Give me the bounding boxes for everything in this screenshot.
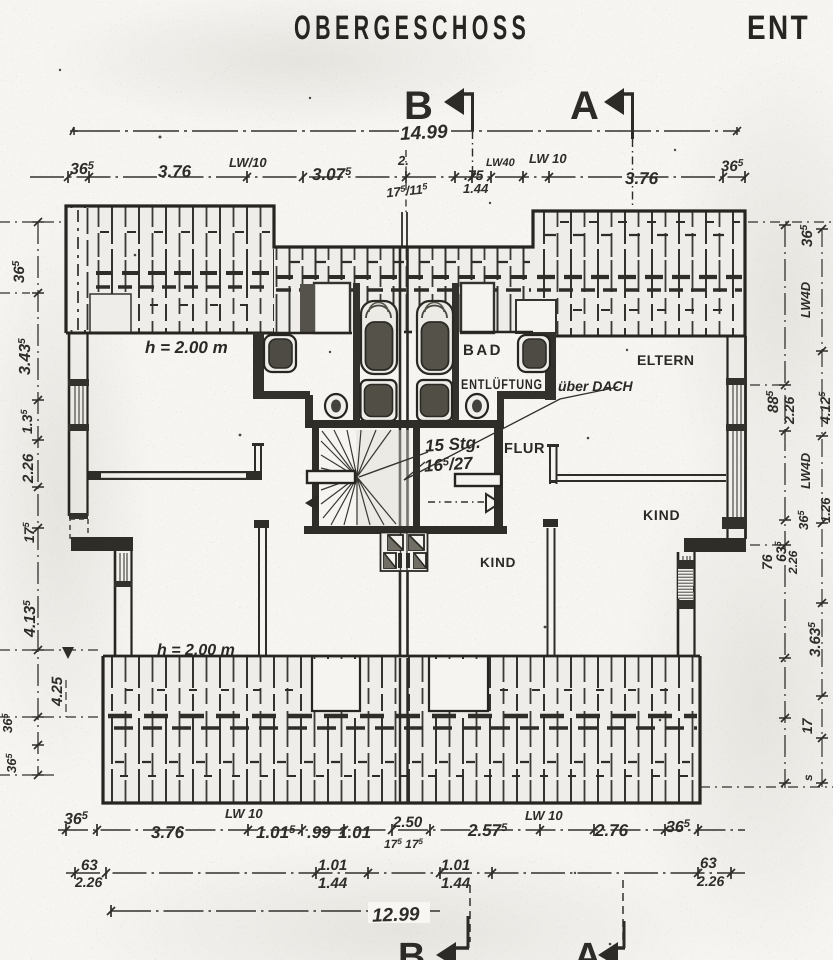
svg-text:über DACH: über DACH [558,378,634,394]
svg-text:s: s [801,774,815,781]
svg-text:63: 63 [81,857,98,874]
svg-text:1.26: 1.26 [818,497,833,523]
svg-text:.99: .99 [307,823,331,842]
svg-text:LW4D: LW4D [798,452,813,489]
svg-text:1.01: 1.01 [318,857,347,874]
svg-text:2.26: 2.26 [696,873,724,889]
svg-text:63: 63 [700,855,717,872]
svg-text:OBERGESCHOSS: OBERGESCHOSS [294,9,530,47]
svg-text:LW 10: LW 10 [529,151,567,166]
svg-text:1.44: 1.44 [463,181,489,196]
svg-text:2.26: 2.26 [20,453,37,484]
svg-text:KIND: KIND [480,555,516,570]
svg-text:12.99: 12.99 [372,904,421,927]
svg-text:165/27: 165/27 [423,453,474,475]
svg-text:2.50: 2.50 [392,814,423,831]
svg-text:A: A [570,84,599,128]
svg-text:LW/10: LW/10 [229,155,267,170]
svg-text:KIND: KIND [643,507,680,523]
svg-text:ENTLÜFTUNG: ENTLÜFTUNG [461,376,543,392]
svg-text:ENT: ENT [747,9,810,47]
svg-text:3.76: 3.76 [151,823,185,842]
svg-text:3.76: 3.76 [158,162,192,181]
svg-text:175 175: 175 175 [384,837,424,851]
svg-text:2.26: 2.26 [74,874,102,890]
svg-text:15 Stg.: 15 Stg. [424,433,481,456]
svg-text:3.76: 3.76 [625,169,659,188]
svg-text:1.44: 1.44 [318,875,348,892]
svg-text:B: B [404,84,433,128]
svg-text:LW40: LW40 [486,157,516,169]
svg-text:17: 17 [799,717,815,734]
svg-text:4.25: 4.25 [49,676,66,707]
svg-text:A: A [574,936,601,960]
svg-text:BAD: BAD [463,342,503,359]
svg-text:1.01: 1.01 [441,857,470,874]
svg-text:2.: 2. [397,153,409,168]
svg-text:ELTERN: ELTERN [637,352,694,368]
svg-text:LW 10: LW 10 [525,808,563,823]
svg-text:14.99: 14.99 [400,122,449,145]
svg-text:1.01: 1.01 [338,823,371,842]
svg-text:2.26: 2.26 [786,550,800,575]
svg-text:FLUR: FLUR [504,441,545,457]
svg-text:h = 2.00 m: h = 2.00 m [145,338,228,357]
svg-text:LW 10: LW 10 [225,806,263,821]
svg-text:B: B [398,936,425,960]
svg-text:LW4D: LW4D [798,281,813,318]
svg-text:1.44: 1.44 [441,875,471,892]
svg-text:2.26: 2.26 [781,397,797,425]
svg-text:2.76: 2.76 [594,821,629,840]
